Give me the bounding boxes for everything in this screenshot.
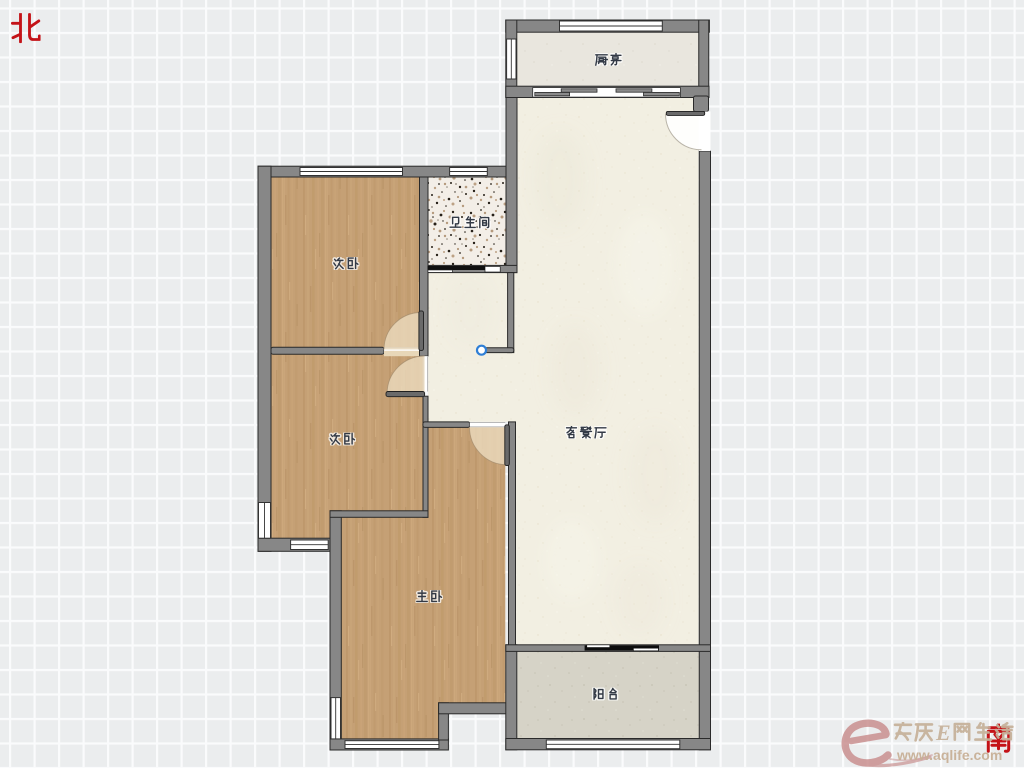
svg-text:E: E: [935, 720, 951, 745]
svg-text:www.aqlife.com: www.aqlife.com: [896, 747, 1002, 763]
